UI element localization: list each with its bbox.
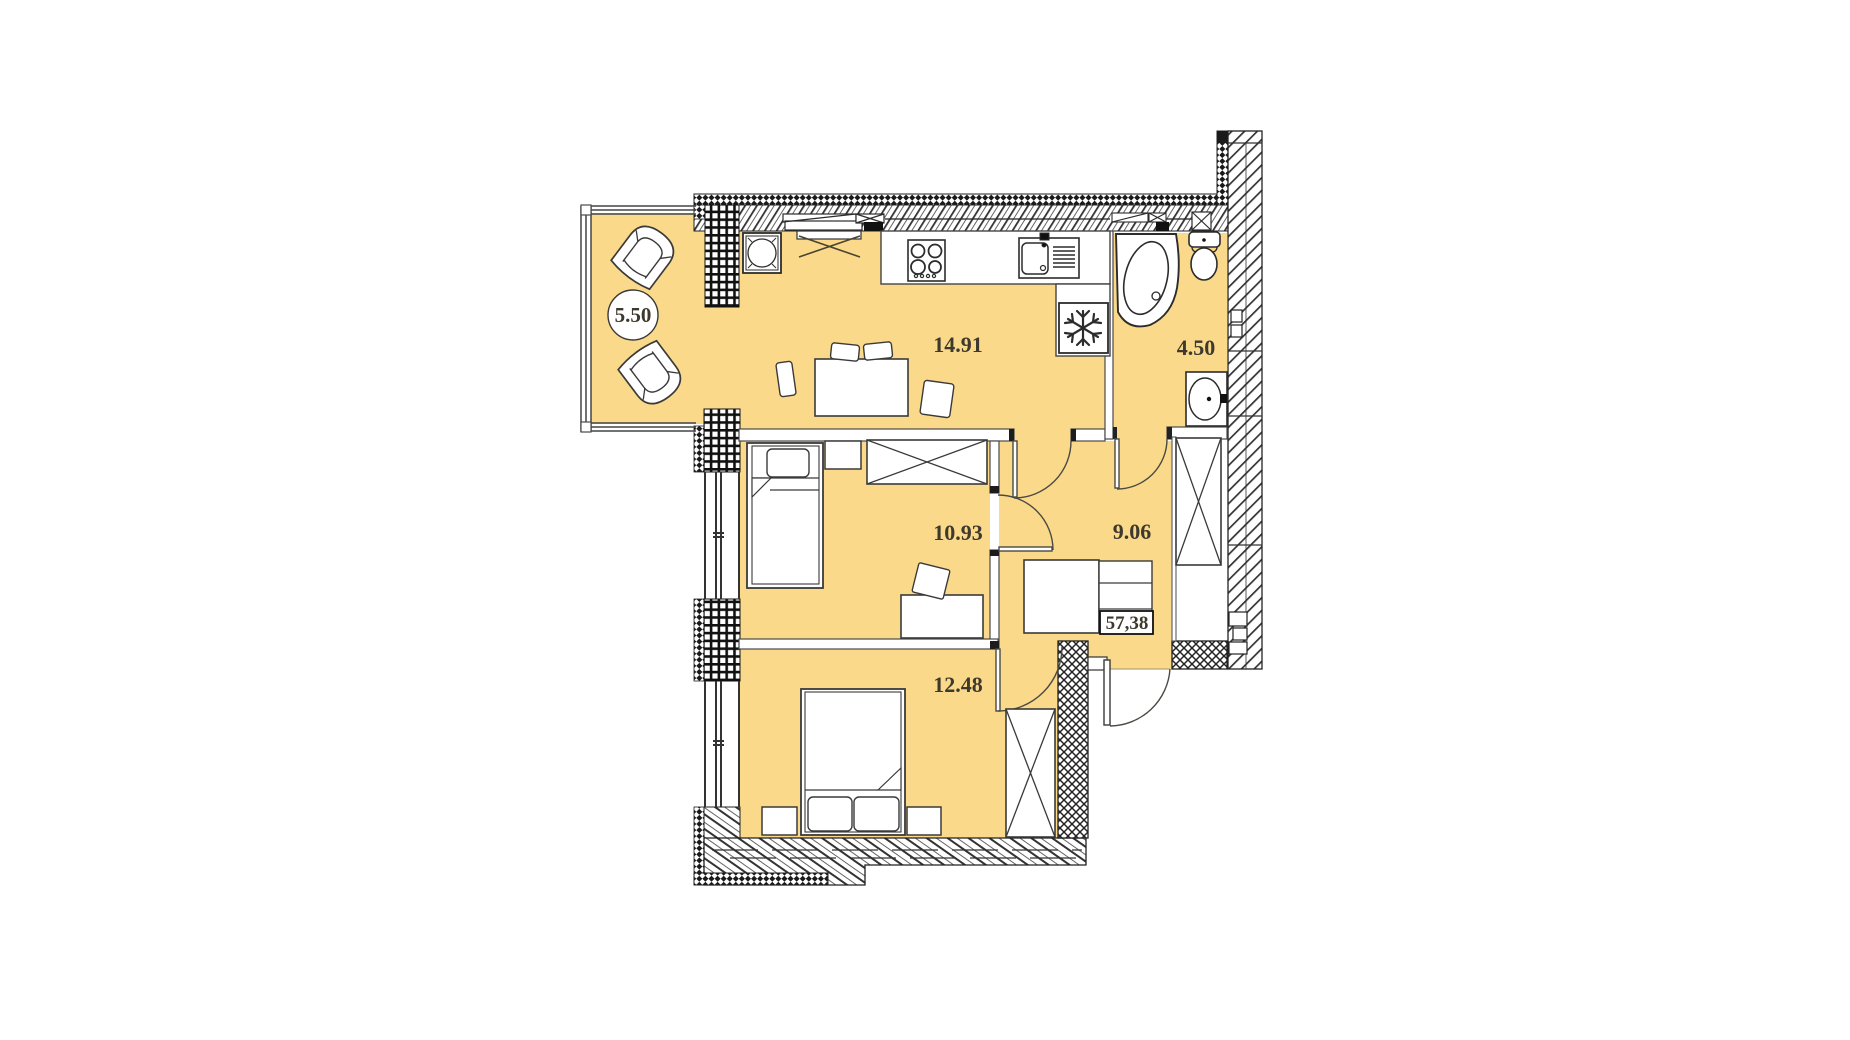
- svg-text:14.91: 14.91: [933, 332, 983, 357]
- svg-text:10.93: 10.93: [933, 520, 983, 545]
- svg-text:4.50: 4.50: [1177, 335, 1216, 360]
- svg-text:57,38: 57,38: [1106, 613, 1149, 634]
- svg-text:9.06: 9.06: [1113, 519, 1152, 544]
- svg-text:12.48: 12.48: [933, 672, 983, 697]
- svg-text:5.50: 5.50: [615, 303, 652, 327]
